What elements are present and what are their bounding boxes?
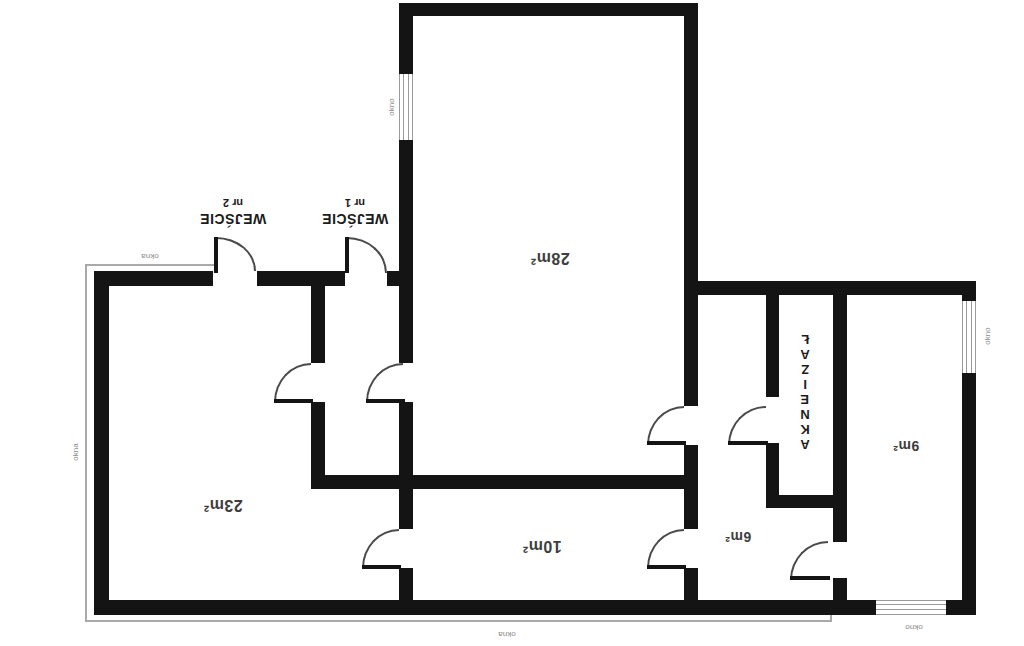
window-room9-right: [962, 301, 976, 373]
door-leaf-room23: [274, 399, 313, 403]
window-room28: [399, 74, 413, 140]
exterior-wall-right-top: [684, 281, 976, 295]
interior-wall-left-vertical-d: [399, 568, 413, 615]
interior-wall-left-vertical-b: [399, 140, 413, 363]
door-leaf-room28: [366, 399, 405, 403]
door-arc-entrance-2: [216, 237, 256, 271]
corridor-wall-a: [311, 271, 325, 363]
door-arc-room28: [366, 363, 403, 402]
door-leaf-room10-right: [647, 565, 686, 569]
room-label-bathroom: ŁAZIENKA: [800, 332, 809, 452]
window-label-room9: okno: [983, 327, 992, 344]
entrance-2-number: nr 2: [200, 195, 267, 209]
door-arc-room6: [647, 406, 684, 445]
interior-wall-right-vertical-a: [684, 3, 698, 406]
exterior-wall-right-b: [962, 373, 976, 615]
exterior-wall-top: [399, 3, 698, 16]
window-label-left: okna: [71, 443, 80, 460]
bathroom-wall-right-a: [833, 281, 847, 542]
door-arc-room10-right: [647, 529, 684, 568]
window-label-bottom-right: okno: [905, 623, 922, 632]
door-arc-room23: [274, 363, 311, 402]
door-leaf-entrance-1: [345, 237, 349, 273]
door-arc-bathroom: [728, 406, 766, 445]
window-line-bottom: [85, 620, 832, 622]
door-arc-entrance-1: [347, 237, 387, 273]
window-line-top-left: [87, 264, 214, 266]
room-label-10m2: 10m²: [522, 537, 561, 555]
entrance-label-2: WEJŚCIE nr 2: [200, 195, 267, 226]
window-line-left: [85, 264, 87, 622]
door-arc-room10-left: [362, 529, 399, 568]
door-leaf-room9: [790, 576, 830, 580]
entrance-wall-a: [94, 271, 213, 286]
wall-above-10m2: [311, 475, 698, 489]
exterior-wall-bottom-a: [94, 600, 876, 615]
window-room9-bottom: [876, 600, 946, 615]
bathroom-wall-right-b: [833, 578, 847, 615]
window-label-room28: okno: [387, 98, 396, 115]
entrance-label-1: WEJŚCIE nr 1: [322, 195, 389, 226]
door-leaf-entrance-2: [214, 237, 218, 273]
floor-plan: 28m² 23m² 10m² 6m² 9m² ŁAZIENKA WEJŚCIE …: [0, 0, 1024, 646]
entrance-2-word: WEJŚCIE: [200, 209, 267, 227]
room-label-23m2: 23m²: [203, 496, 242, 514]
room-label-6m2: 6m²: [725, 529, 751, 545]
door-arc-room9: [790, 541, 828, 580]
interior-wall-left-vertical-a: [399, 3, 413, 74]
interior-wall-right-vertical-c: [684, 568, 698, 615]
exterior-wall-left: [94, 271, 109, 615]
interior-wall-left-vertical-c: [399, 402, 413, 529]
bathroom-wall-left-a: [766, 281, 779, 397]
entrance-1-number: nr 1: [322, 195, 389, 209]
entrance-1-word: WEJŚCIE: [322, 209, 389, 227]
door-leaf-room10-left: [362, 565, 401, 569]
entrance-wall-b: [257, 271, 345, 286]
room-label-9m2: 9m²: [893, 438, 919, 454]
room-label-28m2: 28m²: [530, 249, 569, 267]
door-leaf-room6: [647, 441, 686, 445]
window-label-top-left: okna: [141, 252, 158, 261]
door-leaf-bathroom: [728, 441, 768, 445]
window-label-bottom: okna: [498, 630, 515, 639]
